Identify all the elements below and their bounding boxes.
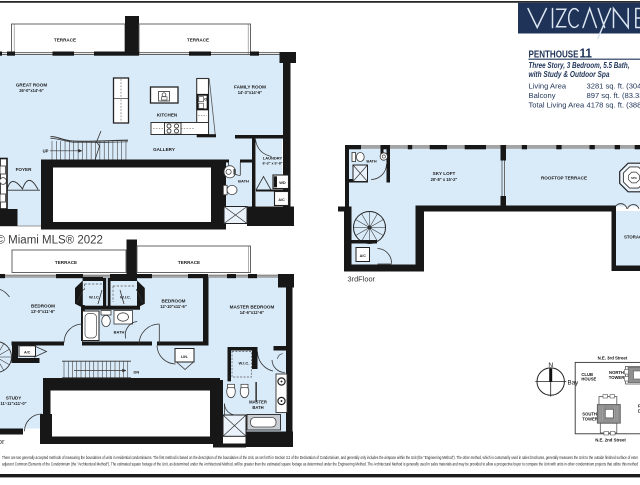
svg-text:897 sq. ft. (83.33 m²): 897 sq. ft. (83.33 m²): [587, 91, 640, 100]
svg-text:BATH: BATH: [252, 405, 263, 410]
svg-text:12'-10"x11'-6": 12'-10"x11'-6": [160, 304, 187, 309]
svg-text:STUDY: STUDY: [6, 396, 22, 401]
svg-text:SKY LOFT: SKY LOFT: [433, 171, 456, 176]
svg-text:BATH: BATH: [366, 159, 377, 163]
svg-text:© Miami MLS® 2022: © Miami MLS® 2022: [0, 235, 103, 247]
svg-text:adjacent Common Elements of th: adjacent Common Elements of the Condomin…: [2, 461, 638, 466]
svg-text:BEDROOM: BEDROOM: [31, 304, 55, 309]
svg-text:20'-8" x 15'-2": 20'-8" x 15'-2": [431, 177, 458, 182]
svg-text:Three Story, 3 Bedroom, 5.5 Ba: Three Story, 3 Bedroom, 5.5 Bath,: [529, 61, 630, 70]
svg-text:TERRACE: TERRACE: [55, 260, 77, 265]
svg-text:14'-3"x14'-6": 14'-3"x14'-6": [238, 90, 263, 95]
svg-text:ROOFTOP TERRACE: ROOFTOP TERRACE: [541, 176, 587, 181]
svg-text:FAMILY ROOM: FAMILY ROOM: [234, 85, 266, 90]
svg-text:11'-11"x11'-0": 11'-11"x11'-0": [0, 401, 26, 406]
svg-text:2ndFloor: 2ndFloor: [0, 437, 5, 446]
svg-text:WD: WD: [279, 180, 286, 185]
svg-text:TERRACE: TERRACE: [178, 260, 200, 265]
svg-text:W.I.C.: W.I.C.: [89, 295, 100, 300]
svg-text:N.E. 3rd Street: N.E. 3rd Street: [598, 356, 628, 361]
svg-text:BATH: BATH: [114, 330, 125, 335]
svg-text:W.I.C.: W.I.C.: [120, 295, 131, 300]
svg-text:GREAT ROOM: GREAT ROOM: [16, 83, 47, 88]
svg-text:3rdFloor: 3rdFloor: [348, 275, 376, 284]
svg-text:There are two generally accept: There are two generally accepted methods…: [2, 455, 638, 460]
svg-text:A/C: A/C: [24, 350, 31, 354]
svg-text:MASTER BEDROOM: MASTER BEDROOM: [230, 305, 275, 310]
svg-text:with Study & Outdoor Spa: with Study & Outdoor Spa: [529, 70, 610, 79]
svg-text:4178 sq. ft. (388.13 m²): 4178 sq. ft. (388.13 m²): [587, 101, 640, 110]
svg-text:TERRACE: TERRACE: [187, 38, 209, 43]
svg-text:TOWER: TOWER: [609, 375, 625, 380]
svg-text:DN: DN: [134, 369, 140, 374]
svg-text:Living Area: Living Area: [529, 82, 567, 91]
svg-text:BATH: BATH: [238, 179, 249, 184]
svg-text:N.E. 2nd Street: N.E. 2nd Street: [595, 438, 626, 443]
svg-text:TERRACE: TERRACE: [54, 38, 76, 43]
svg-text:HOUSE: HOUSE: [581, 377, 596, 382]
svg-text:26'-0"x14'-6": 26'-0"x14'-6": [19, 88, 44, 93]
svg-text:6'-3" x 6'-8": 6'-3" x 6'-8": [262, 162, 282, 166]
svg-text:A/C: A/C: [278, 198, 285, 202]
svg-text:LAUNDRY: LAUNDRY: [263, 156, 283, 161]
svg-text:14'-6"x12'-6": 14'-6"x12'-6": [240, 310, 265, 315]
svg-text:Bay: Bay: [568, 379, 580, 386]
svg-text:11: 11: [580, 46, 593, 61]
svg-text:N: N: [548, 362, 553, 369]
svg-text:FOYER: FOYER: [16, 167, 33, 172]
svg-text:TOWER: TOWER: [582, 416, 598, 421]
svg-text:LIN.: LIN.: [181, 355, 188, 359]
svg-text:Balcony: Balcony: [529, 91, 556, 100]
svg-text:STORAGE: STORAGE: [624, 235, 640, 240]
svg-text:UP: UP: [43, 149, 49, 154]
svg-text:MASTER: MASTER: [249, 400, 267, 405]
svg-text:GALLERY: GALLERY: [153, 147, 175, 152]
svg-text:3281 sq. ft. (304.8 m²): 3281 sq. ft. (304.8 m²): [587, 82, 640, 91]
svg-text:BEDROOM: BEDROOM: [162, 299, 186, 304]
svg-text:Total Living Area: Total Living Area: [529, 101, 585, 110]
svg-text:SPA: SPA: [631, 176, 638, 180]
svg-text:A/C: A/C: [360, 254, 367, 258]
svg-text:W.I.C.: W.I.C.: [239, 361, 250, 366]
svg-text:KITCHEN: KITCHEN: [157, 113, 178, 118]
svg-text:13'-0"x11'-6": 13'-0"x11'-6": [31, 309, 55, 314]
